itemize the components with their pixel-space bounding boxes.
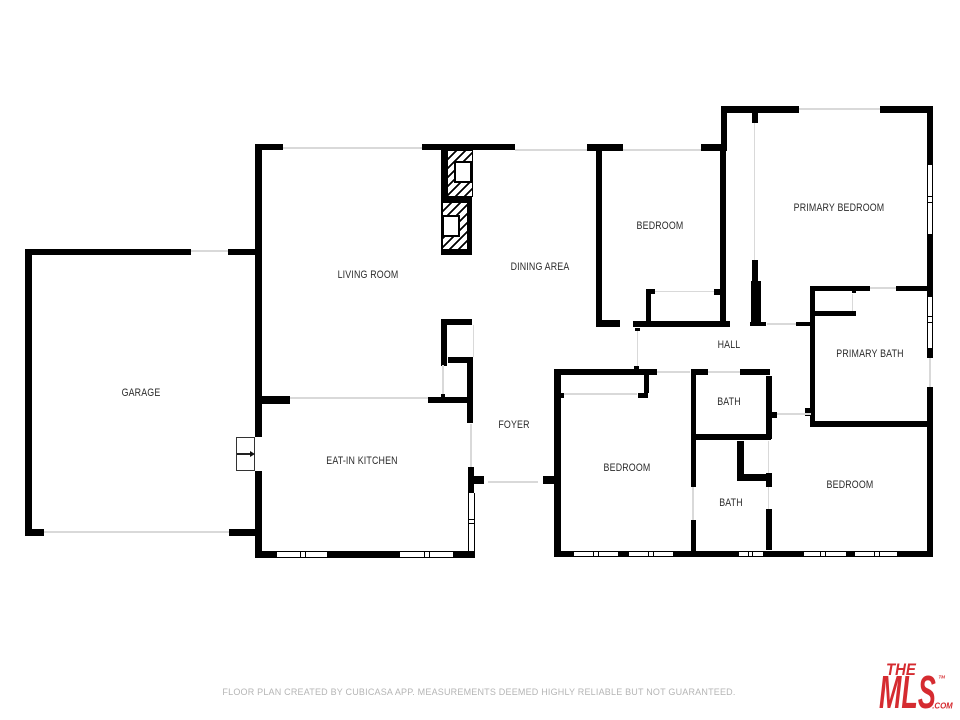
svg-text:.COM: .COM [932,701,953,710]
svg-text:TM: TM [939,675,946,680]
svg-text:MLS: MLS [879,666,936,714]
